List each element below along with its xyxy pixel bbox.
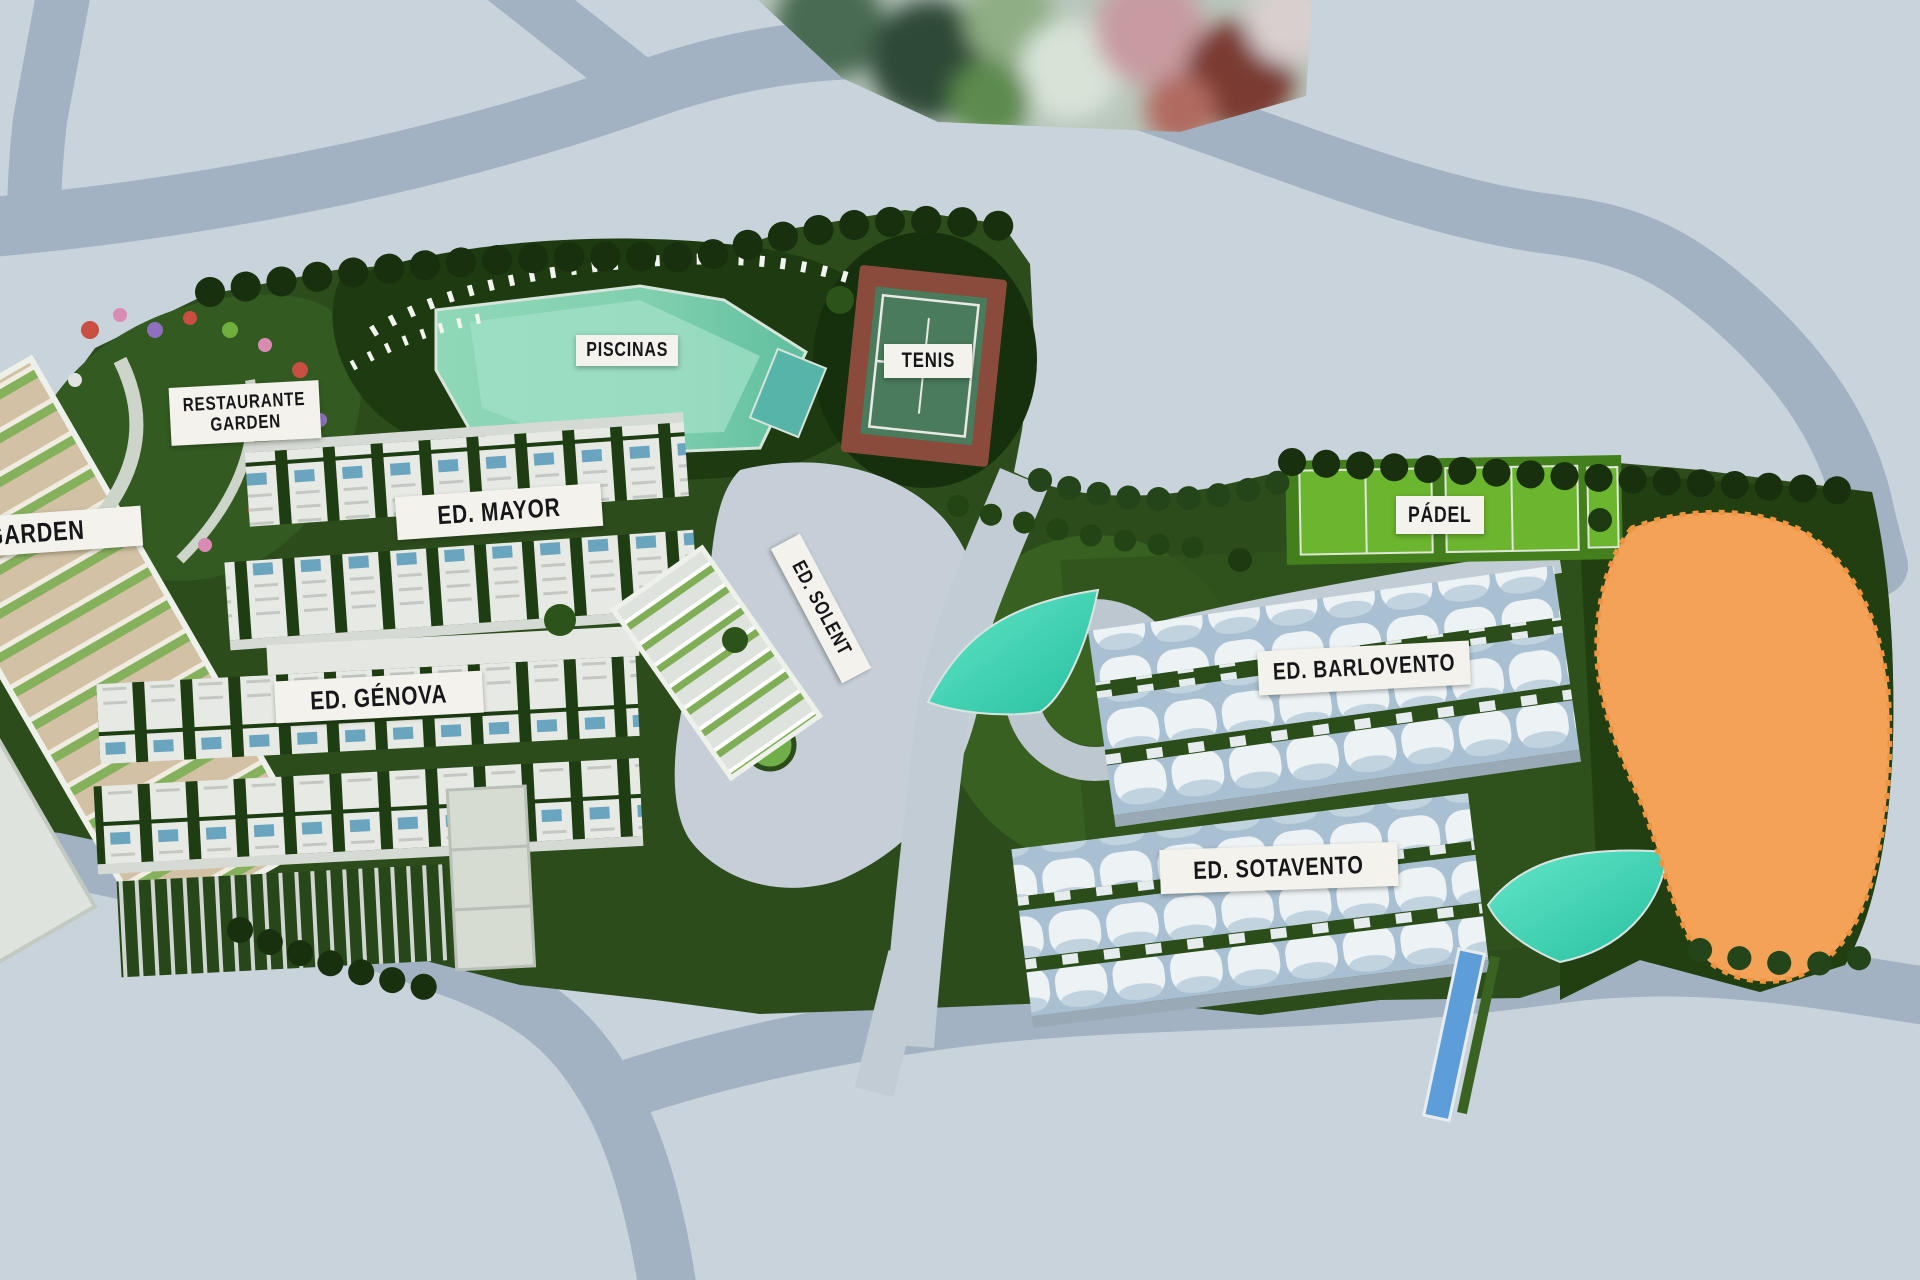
label-restaurante-garden: RESTAURANTE GARDEN <box>169 380 322 446</box>
label-piscinas: PISCINAS <box>576 335 678 366</box>
label-tenis: TENIS <box>884 344 972 378</box>
label-ed-mayor-text: ED. MAYOR <box>436 492 561 532</box>
label-ed-sotavento-text: ED. SOTAVENTO <box>1193 851 1364 886</box>
label-ed-barlovento-text: ED. BARLOVENTO <box>1272 649 1456 687</box>
label-padel: PÁDEL <box>1396 496 1484 534</box>
site-plan-art <box>0 0 1920 1280</box>
label-restaurante-line2: GARDEN <box>210 411 282 436</box>
site-plan-canvas: GARDEN RESTAURANTE GARDEN PISCINAS TENIS… <box>0 0 1920 1280</box>
label-tenis-text: TENIS <box>901 349 954 373</box>
service-tower-block <box>447 786 534 970</box>
label-garden-text: GARDEN <box>0 514 86 552</box>
label-padel-text: PÁDEL <box>1408 502 1472 528</box>
label-ed-genova-text: ED. GÉNOVA <box>310 678 448 716</box>
label-ed-sotavento: ED. SOTAVENTO <box>1159 842 1398 894</box>
label-piscinas-text: PISCINAS <box>586 339 668 362</box>
